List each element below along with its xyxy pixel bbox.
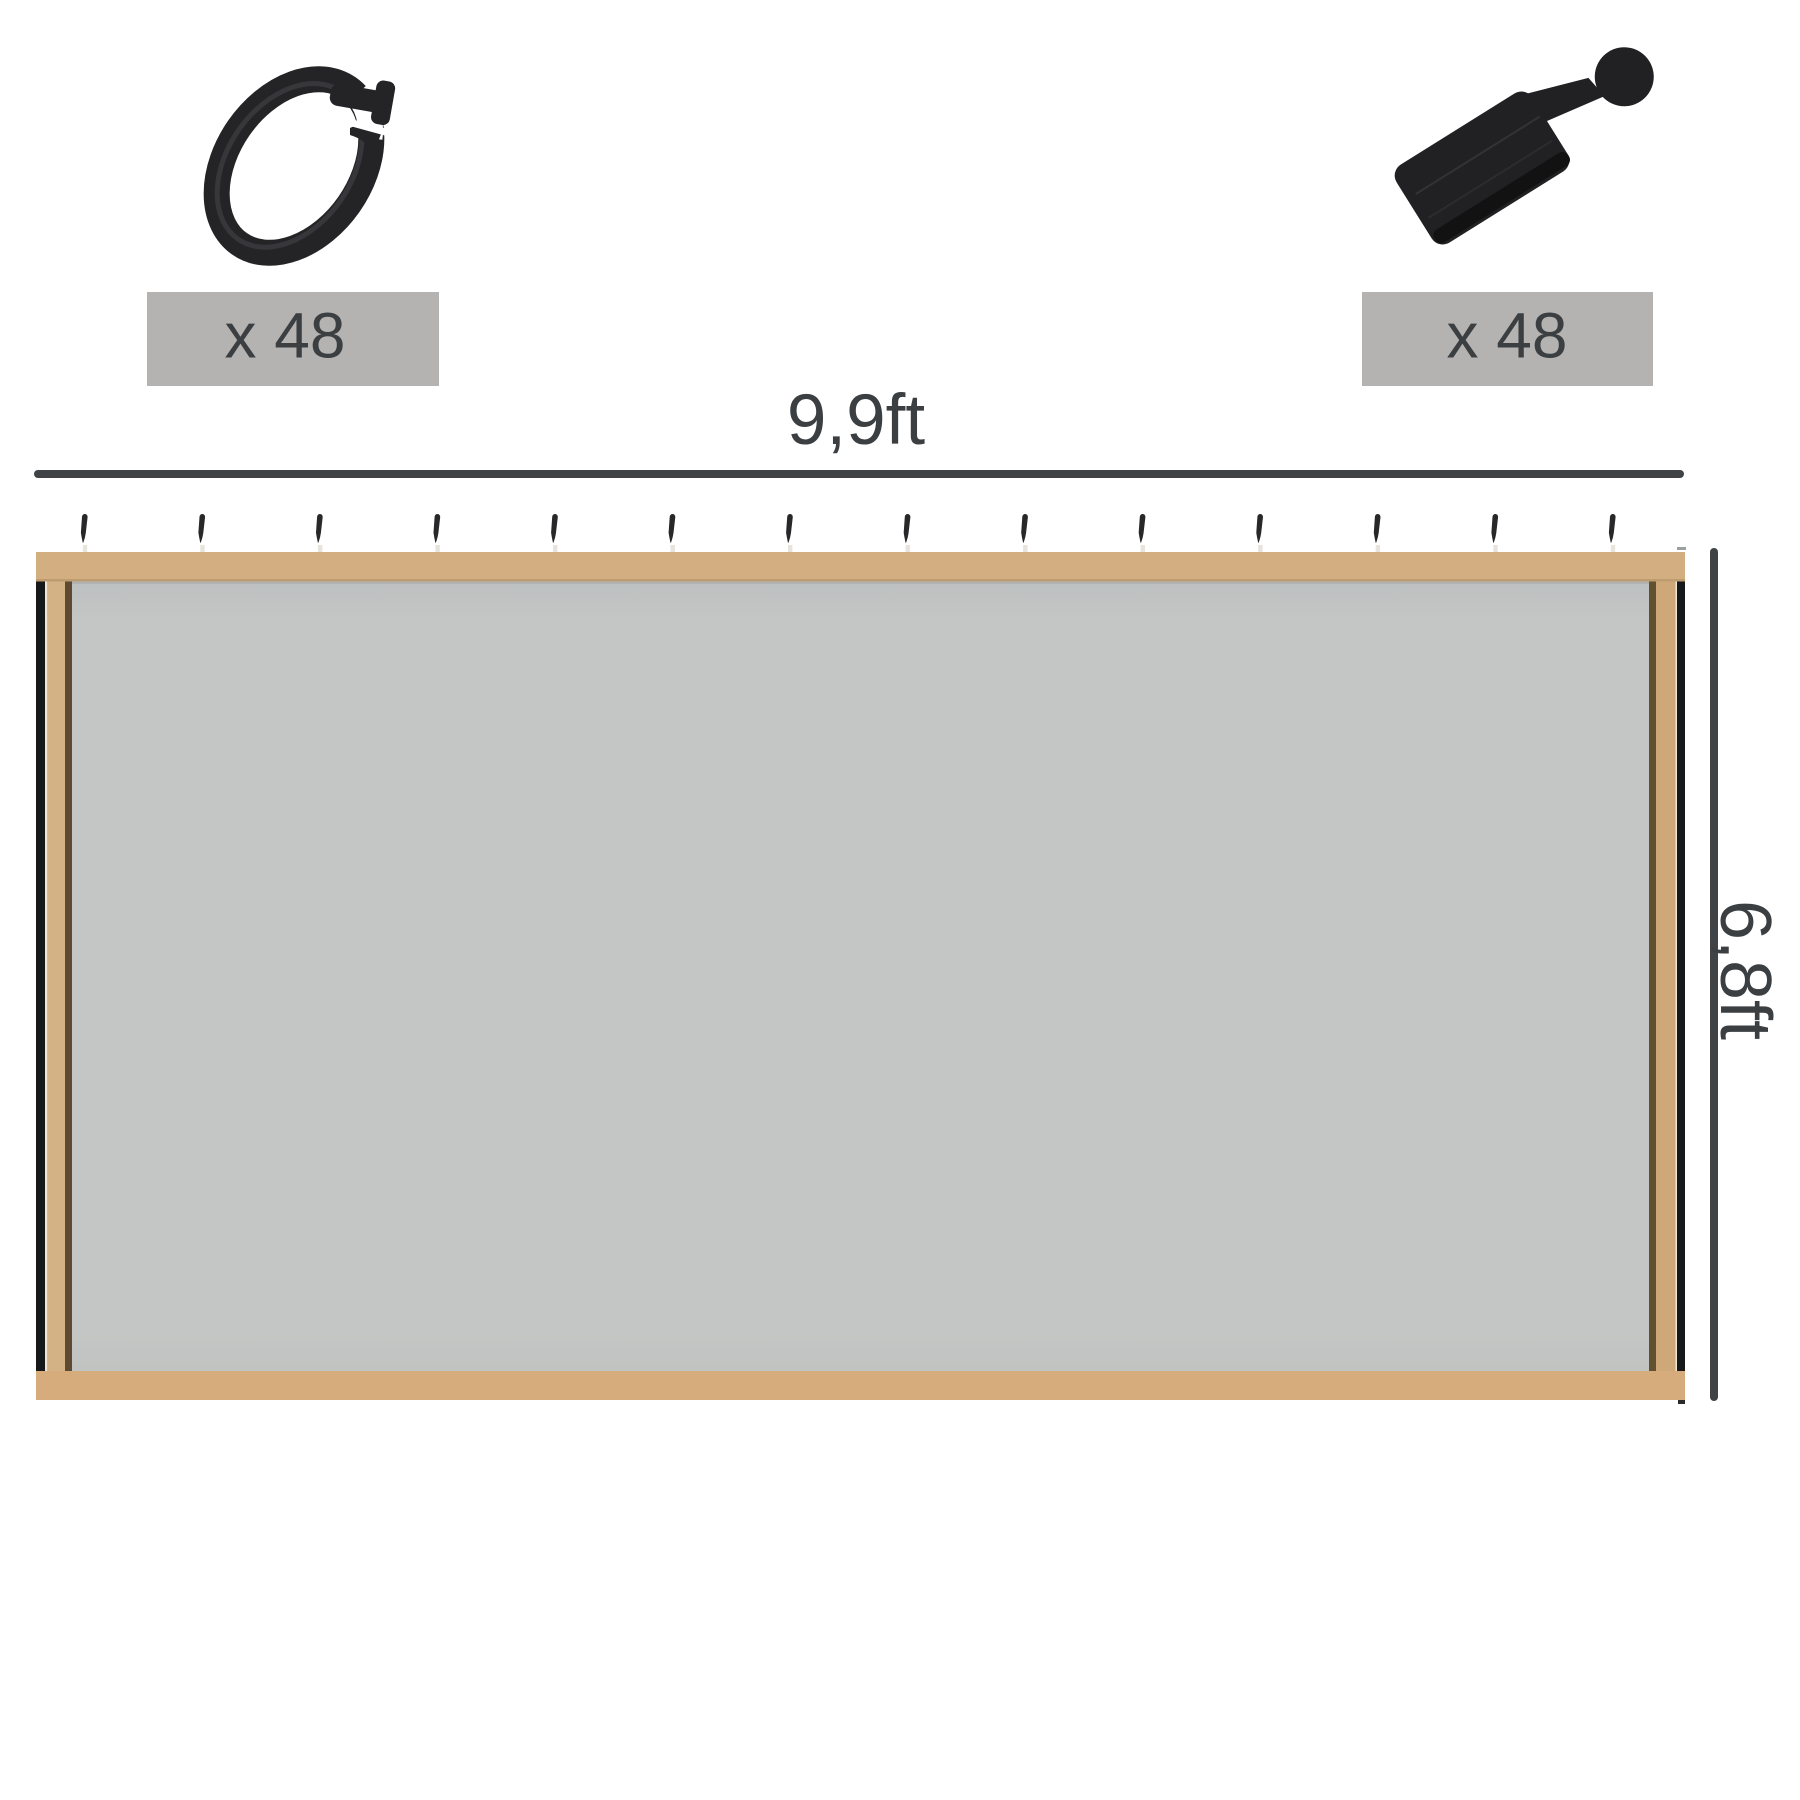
svg-text:x 48: x 48 bbox=[1447, 300, 1568, 372]
svg-text:6,8ft: 6,8ft bbox=[1705, 900, 1785, 1040]
svg-text:x 48: x 48 bbox=[225, 300, 346, 372]
svg-text:9,9ft: 9,9ft bbox=[787, 381, 925, 460]
